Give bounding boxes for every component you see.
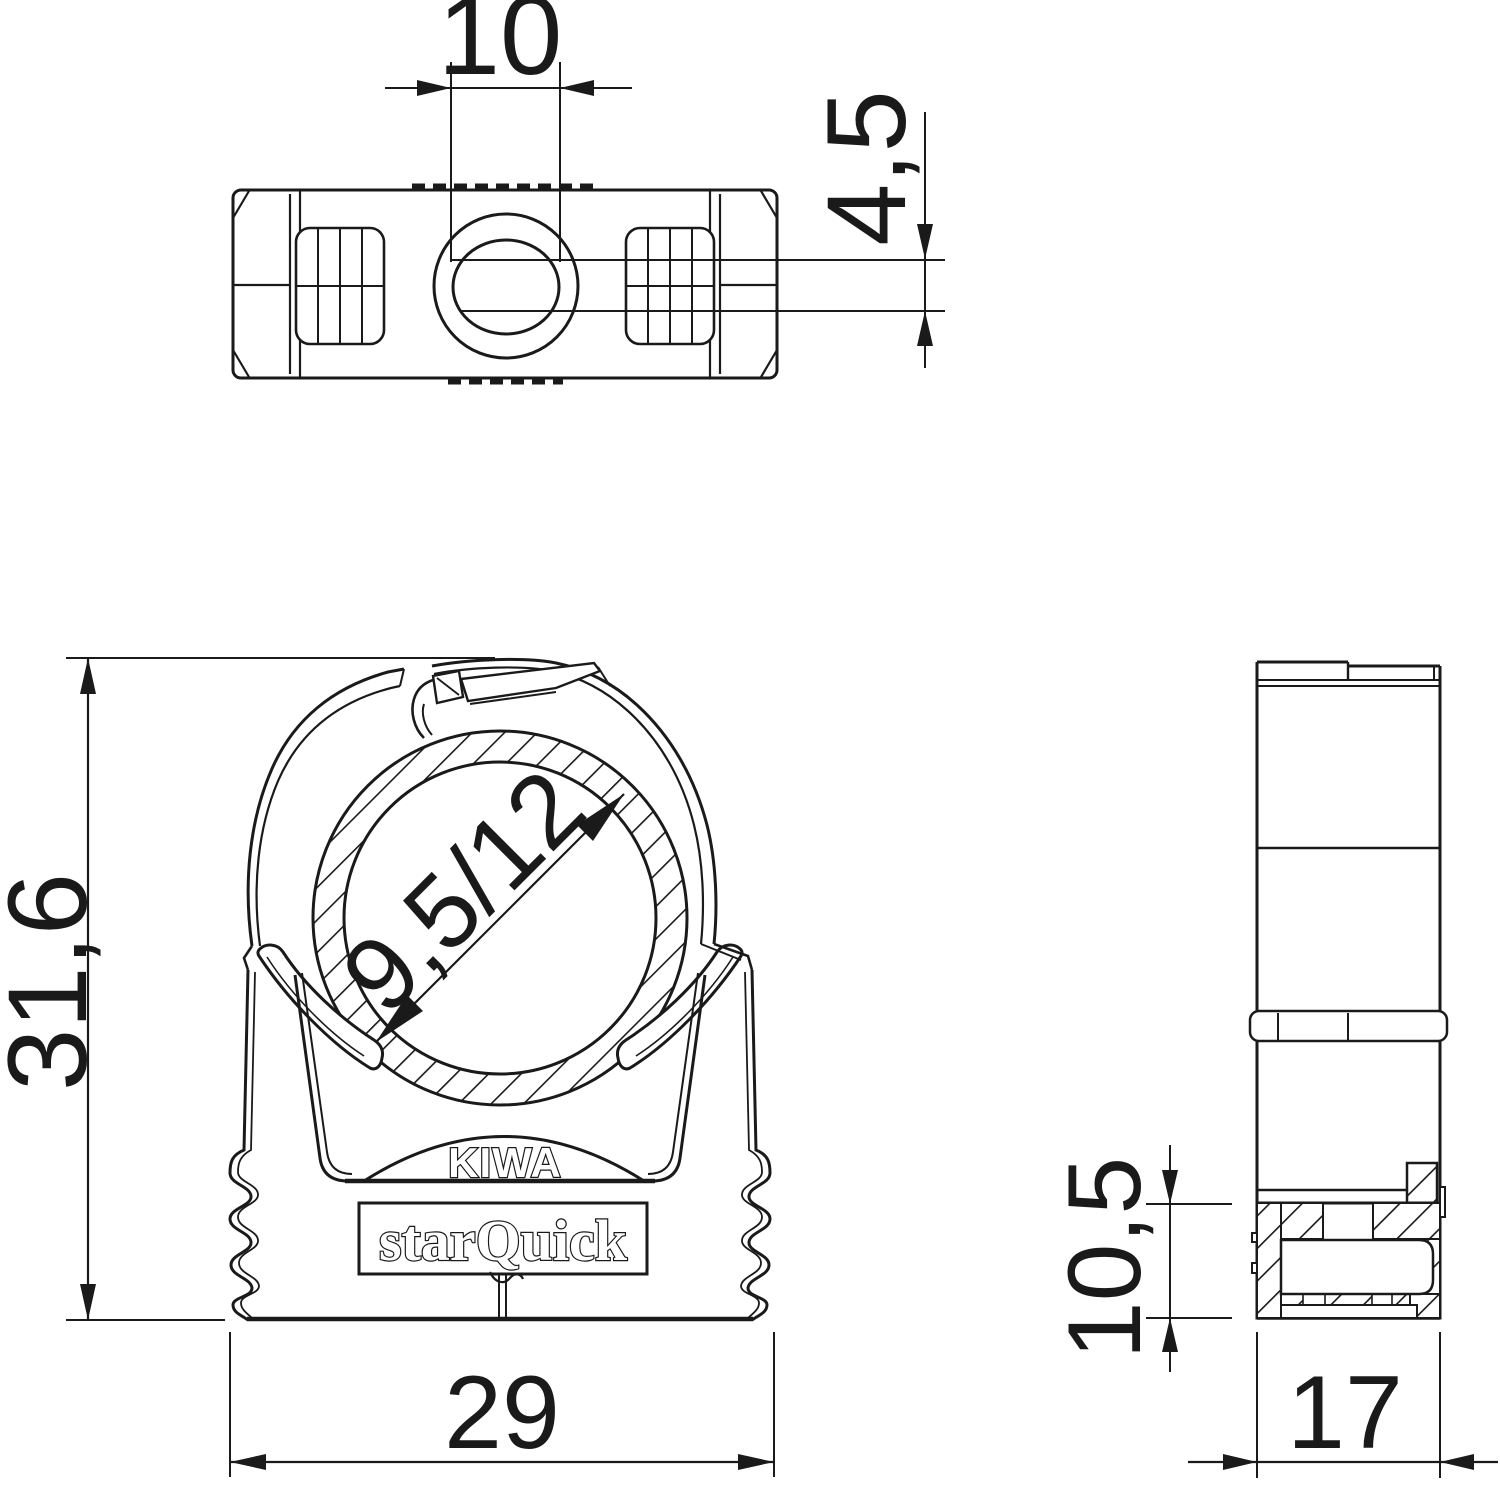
top-view: 10 4,5	[233, 0, 945, 381]
right-tab	[1440, 1187, 1445, 1217]
side-collar	[1250, 1011, 1447, 1041]
dim-10-label: 10	[438, 0, 563, 98]
dim-4-5-label: 4,5	[804, 90, 929, 246]
starquick-label: starQuick	[379, 1208, 628, 1273]
wavy-wall-left-inner	[238, 972, 259, 1318]
dimension-10-5: 10,5	[1047, 1145, 1232, 1372]
grip-pad-left	[296, 228, 384, 344]
technical-drawing: 10 4,5 9,5/12	[0, 0, 1500, 1485]
front-view: 9,5/12	[0, 658, 774, 1477]
drawing-canvas: 10 4,5 9,5/12	[0, 0, 1500, 1485]
dim-29-label: 29	[444, 1355, 560, 1471]
shoulder-ear-left	[244, 946, 252, 970]
dim-31-6-label: 31,6	[0, 873, 110, 1091]
dimension-29: 29	[230, 1332, 774, 1477]
side-view: 10,5 17	[1047, 662, 1498, 1478]
dim-17-label: 17	[1287, 1355, 1403, 1471]
dimension-4-5: 4,5	[804, 90, 933, 368]
wavy-wall-right-inner	[741, 972, 762, 1318]
dimension-17: 17	[1188, 1332, 1498, 1478]
screw-hole	[434, 214, 578, 358]
dim-10-5-label: 10,5	[1047, 1157, 1163, 1359]
left-notch-upper	[1252, 1233, 1257, 1242]
grip-pad-right	[626, 228, 714, 344]
left-notch-lower	[1252, 1263, 1257, 1273]
kiwa-label: KIWA	[448, 1139, 562, 1186]
foot-section	[1252, 1163, 1445, 1318]
latch	[412, 663, 610, 738]
